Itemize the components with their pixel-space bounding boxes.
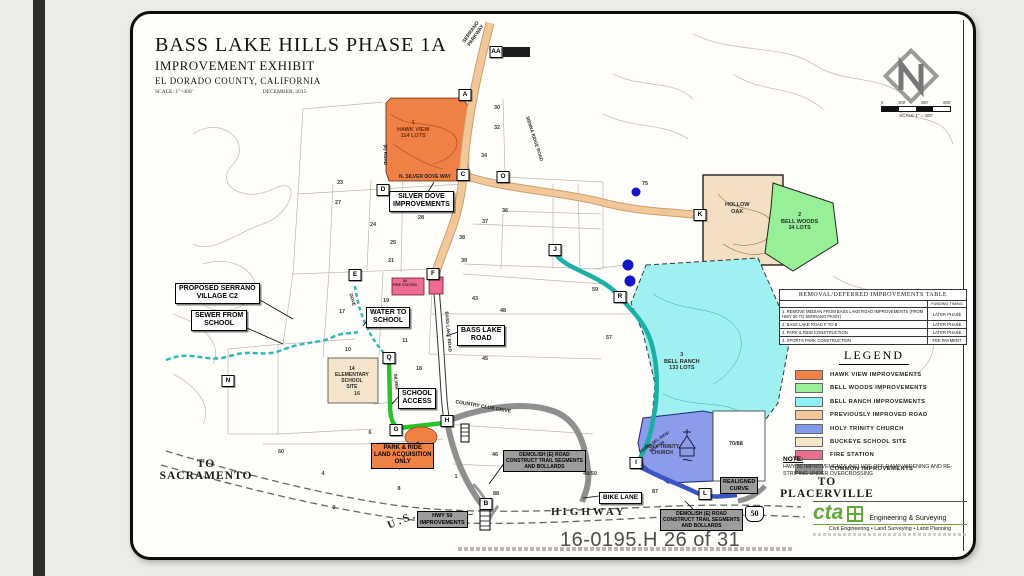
direction-to-sacramento: TO SACRAMENTO [151, 458, 261, 482]
lbl-bell-woods: 2 BELL WOODS 34 LOTS [781, 212, 818, 232]
lbl-us: U.S. [386, 509, 420, 533]
lbl-bass-lake-road: BASS LAKE ROAD [457, 325, 505, 346]
parcel-number: 43 [472, 296, 478, 302]
parcel-number: 6 [368, 430, 371, 436]
lbl-n-silver-dove-way: N. SILVER DOVE WAY [399, 174, 451, 180]
map-marker-E: E [349, 269, 362, 281]
lbl-e-road: (E) ROAD [383, 144, 388, 165]
lbl-elementary-school: 14 ELEMENTARY SCHOOL SITE [335, 366, 369, 390]
firm-address-line [813, 533, 967, 536]
parcel-number: 8 [397, 486, 400, 492]
legend-item: BUCKEYE SCHOOL SITE [795, 437, 967, 447]
scale-bar: 0200'400'800' SCALE 1" = 400' [881, 100, 951, 118]
lbl-hollow-oak: HOLLOW OAK [725, 202, 749, 215]
legend-label: BELL WOODS IMPROVEMENTS [830, 385, 927, 391]
parcel-number: 4 [321, 471, 324, 477]
lbl-water-to-school: WATER TO SCHOOL [366, 307, 410, 328]
parcel-number: 37 [482, 219, 488, 225]
firm-tagline: Engineering & Surveying [869, 515, 946, 522]
firm-logo-block: cta Engineering & Surveying Civil Engine… [813, 501, 967, 536]
map-marker-J: J [549, 244, 562, 256]
parcel-number: 10 [345, 347, 351, 353]
scale-bar-ticks: 0200'400'800' [881, 100, 951, 105]
scale-tick: 800' [943, 100, 951, 105]
page-title: BASS LAKE HILLS PHASE 1A [155, 34, 447, 57]
parcel-number: 48 [500, 308, 506, 314]
table-row: 2. BASS LAKE ROAD F TO BLATER PHASE [780, 321, 967, 329]
parcel-number: 17 [339, 309, 345, 315]
parcel-number: 75 [642, 181, 648, 187]
firm-services: Civil Engineering • Land Surveying • Lan… [813, 526, 967, 532]
lbl-sienna-ridge-road: SIENNA RIDGE ROAD [525, 116, 545, 162]
parcel-number: 46 [492, 452, 498, 458]
legend-label: BUCKEYE SCHOOL SITE [830, 439, 907, 445]
parcel-number: 88 [493, 491, 499, 497]
map-marker-C: C [457, 169, 470, 181]
firm-name: cta [813, 505, 843, 522]
lbl-park-and-ride: PARK & RIDE LAND ACQUISITION ONLY [371, 443, 434, 469]
highway-50-shield: 50 [745, 506, 764, 522]
lbl-silver-vert: SILVER [393, 374, 400, 390]
scale-tick: 0 [881, 100, 883, 105]
table-row: 3. PARK & RIDE CONSTRUCTIONLATER PHASE [780, 329, 967, 337]
legend-swatch [795, 437, 823, 447]
legend-item: HAWK VIEW IMPROVEMENTS [795, 370, 967, 380]
lbl-fire-station: 80 FIRE STATION [393, 279, 417, 287]
legend-label: HAWK VIEW IMPROVEMENTS [830, 372, 922, 378]
lbl-proposed-serrano: PROPOSED SERRANO VILLAGE C2 [175, 283, 260, 304]
parcel-number: 36 [502, 208, 508, 214]
parcel-number: 38 [459, 235, 465, 241]
legend-item: HOLY TRINITY CHURCH [795, 424, 967, 434]
map-marker-R: R [614, 291, 627, 303]
map-marker-D: D [377, 184, 390, 196]
agenda-page-stamp: 16-0195.H 26 of 31 [560, 529, 740, 552]
parcel-number: 28 [418, 215, 424, 221]
map-marker-A: A [459, 89, 472, 101]
legend-swatch [795, 424, 823, 434]
title-block: BASS LAKE HILLS PHASE 1A IMPROVEMENT EXH… [155, 34, 447, 95]
exhibit-sheet: 50 AAABCDEFGHIJKLNOQRSILVER DOVE IMPROVE… [130, 11, 976, 560]
lbl-bike-lane: BIKE LANE [599, 492, 642, 504]
parcel-number: 21 [388, 258, 394, 264]
table-colhead-funding: FUNDING TIMING [928, 301, 967, 308]
parcel-number: 27 [335, 200, 341, 206]
lbl-hawk-view: 1 HAWK VIEW 114 LOTS [397, 120, 429, 140]
legend-swatch [795, 370, 823, 380]
lbl-country-club-drive: COUNTRY CLUB DRIVE [455, 399, 512, 415]
table-row: 1. REMOVE MEDIAN FROM BASS LAKE ROAD IMP… [780, 308, 967, 321]
map-marker-B: B [480, 498, 493, 510]
lbl-silver-dove: SILVER DOVE IMPROVEMENTS [389, 191, 454, 212]
improvements-table-body: REMOVAL/DEFERRED IMPROVEMENTS TABLE FUND… [780, 290, 967, 345]
parcel-number: 25 [390, 240, 396, 246]
legend-item: BELL RANCH IMPROVEMENTS [795, 397, 967, 407]
slide-edge-bar [33, 0, 45, 576]
lbl-school-access: SCHOOL ACCESS [398, 388, 436, 409]
parcel-number: 24 [370, 222, 376, 228]
lbl-70-88: 70/88 [729, 441, 743, 448]
note: NOTE: HWY 50 IMPROVEMENTS INCLUDE OFF-RA… [783, 456, 961, 477]
parcel-number: 19 [383, 298, 389, 304]
table-title: REMOVAL/DEFERRED IMPROVEMENTS TABLE [780, 290, 967, 301]
parcel-number: 3 [332, 505, 335, 511]
parcel-number: 1 [454, 474, 457, 480]
note-heading: NOTE: [783, 456, 961, 463]
map-marker-O: O [497, 171, 510, 183]
legend-title: LEGEND [839, 348, 909, 365]
firm-grid-icon [847, 506, 863, 522]
parcel-number: 87 [652, 489, 658, 495]
lbl-sewer-from-school: SEWER FROM SCHOOL [191, 310, 247, 331]
parcel-number: 57 [606, 335, 612, 341]
scale-caption: SCALE 1" = 400' [881, 113, 951, 118]
parcel-number: 30 [494, 105, 500, 111]
map-marker-F: F [427, 268, 440, 280]
legend-item: PREVIOUSLY IMPROVED ROAD [795, 410, 967, 420]
parcel-number: 34 [481, 153, 487, 159]
legend-item: BELL WOODS IMPROVEMENTS [795, 383, 967, 393]
legend-swatch [795, 410, 823, 420]
map-marker-I: I [630, 457, 643, 469]
parcel-number: 32 [494, 125, 500, 131]
lbl-bell-ranch: 3 BELL RANCH 133 LOTS [664, 352, 700, 372]
page-scale: SCALE: 1"=400' [155, 89, 193, 95]
scale-tick: 400' [921, 100, 929, 105]
parcel-number: 59 [592, 287, 598, 293]
direction-to-placerville: TO PLACERVILLE [777, 476, 877, 500]
map-marker-AA: AA [490, 46, 503, 58]
legend-label: PREVIOUSLY IMPROVED ROAD [830, 412, 928, 418]
map-marker-L: L [699, 488, 712, 500]
parcel-number: 60 [278, 449, 284, 455]
legend-swatch [795, 383, 823, 393]
lbl-dove: DOVE [348, 293, 357, 307]
page-date: DECEMBER, 2015 [263, 89, 307, 95]
lbl-realigned-curve: REALIGNED CURVE [720, 477, 758, 494]
scale-tick: 200' [898, 100, 906, 105]
table-row: 4. SPORTS PARK CONSTRUCTIONFEE PAYMENT [780, 337, 967, 345]
map-marker-K: K [694, 209, 707, 221]
lbl-demolish-road-west: DEMOLISH (E) ROAD CONSTRUCT TRAIL SEGMEN… [503, 450, 586, 472]
parcel-number: 18 [416, 366, 422, 372]
interchange-callout [503, 47, 530, 57]
improvements-table: REMOVAL/DEFERRED IMPROVEMENTS TABLE FUND… [779, 289, 967, 345]
page-subtitle: IMPROVEMENT EXHIBIT [155, 58, 447, 74]
parcel-number: 39 [461, 258, 467, 264]
parcel-number: 23 [337, 180, 343, 186]
parcel-number: 16 [354, 391, 360, 397]
table-colhead-blank [780, 301, 928, 308]
scale-bar-strip [881, 106, 951, 112]
lbl-bass-lake-road-vert: BASS LAKE ROAD [444, 311, 453, 352]
parcel-number: 11 [402, 338, 408, 344]
lbl-hwy50-improvements: HWY 50 IMPROVEMENTS [417, 511, 468, 528]
map-marker-H: H [441, 415, 454, 427]
map-marker-Q: Q [383, 352, 396, 364]
lbl-highway: HIGHWAY [551, 506, 627, 519]
lbl-demolish-road-east: DEMOLISH (E) ROAD CONSTRUCT TRAIL SEGMEN… [660, 509, 743, 531]
legend-label: BELL RANCH IMPROVEMENTS [830, 399, 925, 405]
parcel-number: 45 [482, 356, 488, 362]
legend-swatch [795, 397, 823, 407]
lbl-serrano-parkway: SERRANO PARKWAY [461, 20, 485, 47]
page-location: EL DORADO COUNTY, CALIFORNIA [155, 76, 447, 86]
map-marker-G: G [390, 424, 403, 436]
map-marker-N: N [222, 375, 235, 387]
legend-label: HOLY TRINITY CHURCH [830, 426, 904, 432]
